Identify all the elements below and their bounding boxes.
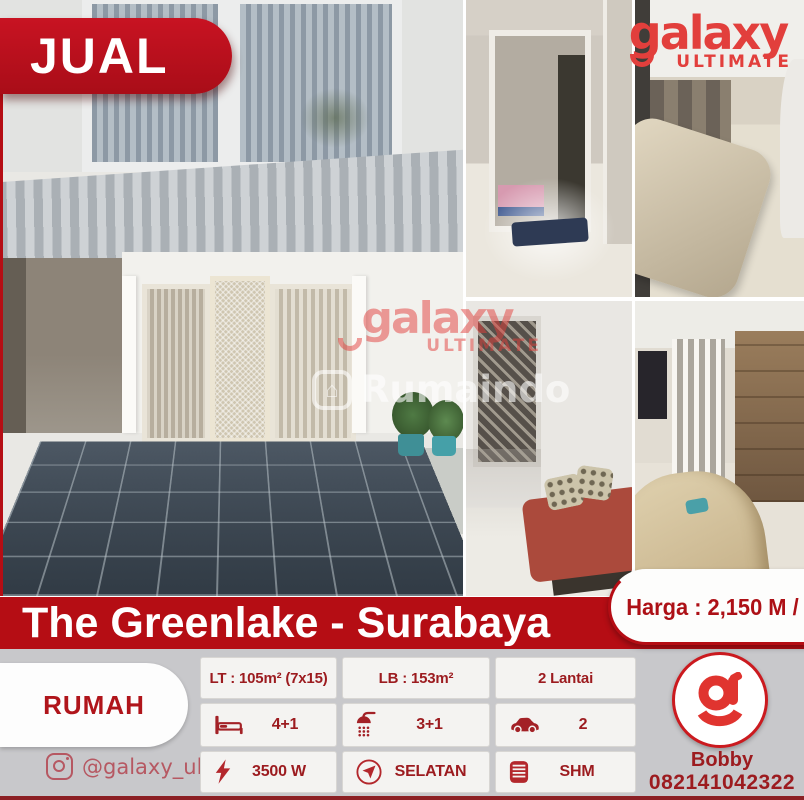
price-badge: Harga : 2,150 M / Nego <box>608 569 804 645</box>
spec-certificate: SHM <box>495 751 636 793</box>
car-icon <box>509 715 541 735</box>
background-tree <box>300 88 370 148</box>
instagram-icon <box>46 753 73 780</box>
bottom-accent-line <box>0 796 804 800</box>
tiled-driveway <box>0 441 463 596</box>
rumaindo-watermark: ⌂ Rumaindo <box>312 368 570 411</box>
wall-tv <box>638 351 667 419</box>
patterned-pillow <box>574 464 614 501</box>
price-text: Harga : 2,150 M / Nego <box>611 594 804 621</box>
property-type-badge: RUMAH <box>0 663 188 747</box>
carport-value: 2 <box>541 716 625 734</box>
plant-pot <box>398 434 424 456</box>
living1-stair-wall <box>780 59 804 237</box>
bed-icon <box>214 715 244 735</box>
compass-icon <box>356 759 382 785</box>
spec-power: 3500 W <box>200 751 337 793</box>
info-section: RUMAH @galaxy_ultimate LT : 105m² (7x15)… <box>0 649 804 800</box>
galaxy-g-logo-circle <box>672 652 768 748</box>
bathrooms-value: 3+1 <box>380 716 479 734</box>
facade-pillar <box>122 276 136 433</box>
glass-door-left <box>142 284 210 443</box>
house-icon: ⌂ <box>312 370 352 410</box>
spec-facing: SELATAN <box>342 751 490 793</box>
wooden-cabinet <box>735 331 804 502</box>
spec-building-area: LB : 153m² <box>342 657 490 699</box>
bedrooms-value: 4+1 <box>244 716 326 734</box>
screen-door <box>210 276 270 443</box>
left-edge-accent-line <box>0 88 3 596</box>
spec-bedrooms: 4+1 <box>200 703 337 747</box>
agent-block: Bobby 082141042322 <box>640 649 804 800</box>
rumaindo-watermark-text: Rumaindo <box>361 368 570 411</box>
power-value: 3500 W <box>232 763 326 781</box>
side-wall-shadow <box>0 258 26 433</box>
galaxy-ultimate-logo: galaxy ULTIMATE <box>624 14 792 72</box>
lightning-icon <box>214 759 232 785</box>
spec-bathrooms: 3+1 <box>342 703 490 747</box>
agent-phone: 082141042322 <box>640 771 804 795</box>
listing-flyer: JUAL galaxy ULTIMATE galaxy ULTIMATE ⌂ R… <box>0 0 804 800</box>
certificate-icon <box>509 760 529 784</box>
plant-pot <box>432 436 456 456</box>
galaxy-watermark: galaxy ULTIMATE <box>332 300 542 356</box>
galaxy-watermark-word: galaxy <box>332 300 542 337</box>
spec-floors: 2 Lantai <box>495 657 636 699</box>
agent-name: Bobby <box>640 749 804 772</box>
photo-living-room-2 <box>635 301 804 596</box>
certificate-value: SHM <box>529 763 625 781</box>
spec-carport: 2 <box>495 703 636 747</box>
sale-badge: JUAL <box>0 18 232 94</box>
spec-table: LT : 105m² (7x15) LB : 153m² 2 Lantai 4+… <box>200 657 636 793</box>
floor-mat <box>512 217 590 246</box>
galaxy-g-icon <box>692 672 748 728</box>
spec-land-area: LT : 105m² (7x15) <box>200 657 337 699</box>
photo-hallway <box>466 0 632 297</box>
galaxy-wordmark: galaxy <box>624 14 792 53</box>
facing-value: SELATAN <box>382 763 479 781</box>
shower-icon <box>356 711 380 739</box>
